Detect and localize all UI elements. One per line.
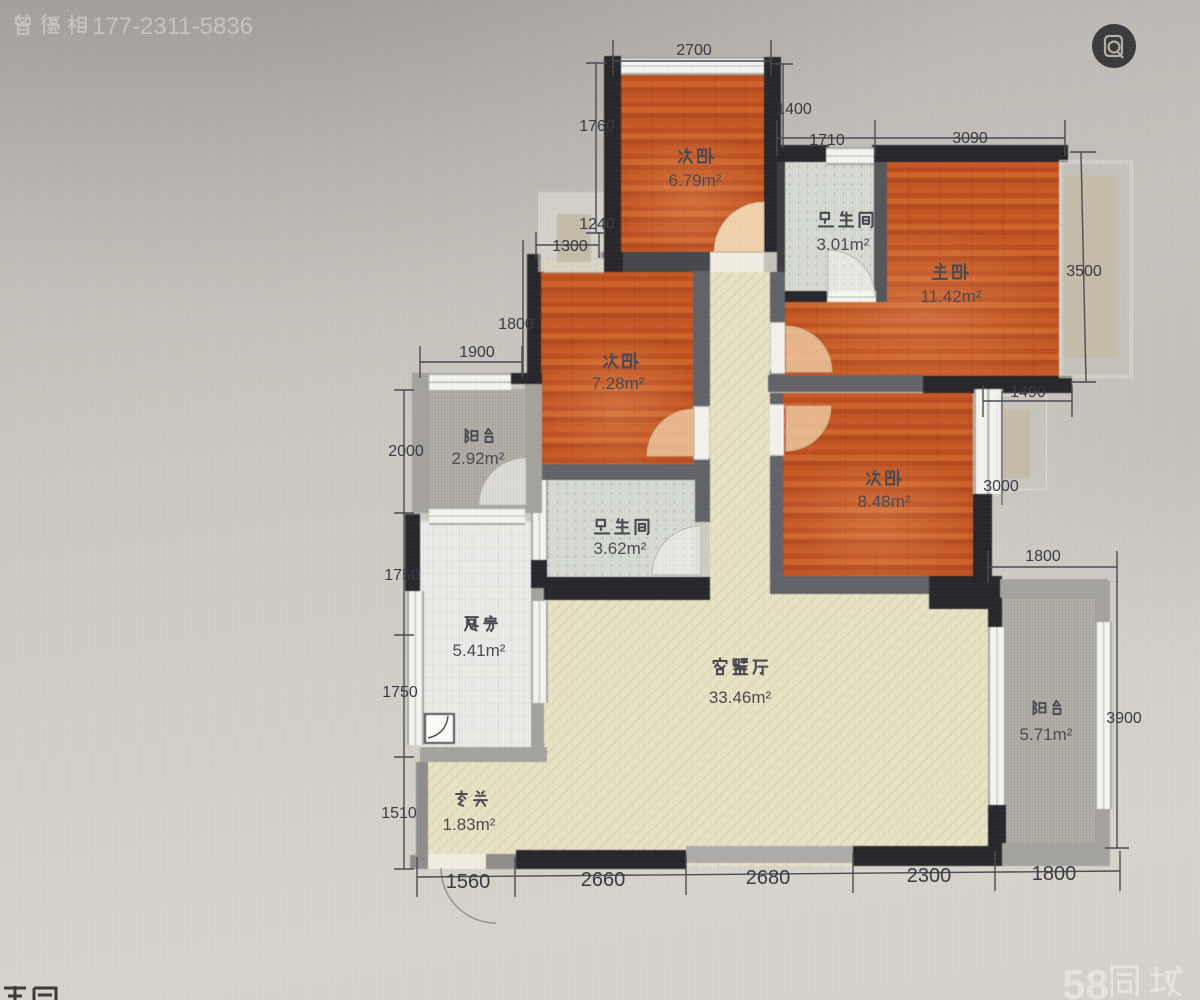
svg-text:177-2311-5836: 177-2311-5836	[92, 13, 253, 40]
svg-text:58: 58	[1062, 961, 1109, 1000]
